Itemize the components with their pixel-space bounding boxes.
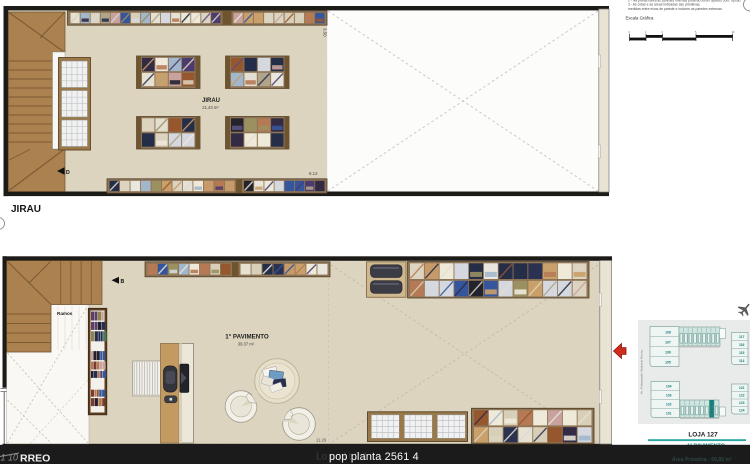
svg-text:6.12: 6.12 bbox=[309, 171, 318, 176]
svg-text:3 - As cotas e as areas indica: 3 - As cotas e as areas indicadas sao pr… bbox=[628, 2, 700, 6]
svg-text:LOJA 127: LOJA 127 bbox=[688, 432, 718, 439]
svg-text:Av. Embaixador Abelardo Bueno: Av. Embaixador Abelardo Bueno bbox=[640, 350, 644, 395]
svg-text:102: 102 bbox=[666, 403, 672, 407]
svg-text:Área Privativa - 60,80 m²: Área Privativa - 60,80 m² bbox=[672, 456, 732, 463]
svg-text:105: 105 bbox=[665, 360, 671, 364]
svg-text:1° PAVIMENTO: 1° PAVIMENTO bbox=[225, 334, 269, 341]
svg-text:122: 122 bbox=[739, 394, 745, 398]
svg-text:RREO: RREO bbox=[20, 453, 50, 464]
svg-text:115: 115 bbox=[739, 351, 745, 355]
svg-text:101: 101 bbox=[666, 412, 672, 416]
svg-text:106: 106 bbox=[665, 350, 671, 354]
svg-text:104: 104 bbox=[666, 385, 672, 389]
svg-text:Ramos: Ramos bbox=[57, 311, 73, 316]
svg-text:107: 107 bbox=[665, 340, 671, 344]
svg-text:123: 123 bbox=[739, 401, 745, 405]
svg-text:121: 121 bbox=[739, 386, 745, 390]
svg-text:116: 116 bbox=[739, 343, 745, 347]
svg-text:103: 103 bbox=[666, 394, 672, 398]
svg-text:3.50: 3.50 bbox=[323, 28, 328, 37]
svg-text:JIRAU: JIRAU bbox=[202, 98, 220, 104]
svg-text:11.26: 11.26 bbox=[316, 438, 327, 443]
svg-text:124: 124 bbox=[739, 409, 745, 413]
svg-text:JIRAU: JIRAU bbox=[11, 204, 41, 215]
svg-text:108: 108 bbox=[665, 330, 671, 334]
svg-text:21.43 m²: 21.43 m² bbox=[202, 105, 219, 110]
svg-text:39.37 m²: 39.37 m² bbox=[238, 342, 255, 347]
svg-text:B: B bbox=[121, 279, 125, 285]
svg-text:D: D bbox=[66, 170, 70, 176]
svg-text:medidas entre eixos de parede: medidas entre eixos de parede e incluem … bbox=[628, 7, 723, 11]
svg-text:pop planta 2561 4: pop planta 2561 4 bbox=[329, 451, 419, 463]
svg-text:Escala Gráfica: Escala Gráfica bbox=[626, 16, 655, 21]
svg-text:117: 117 bbox=[739, 335, 745, 339]
svg-text:114: 114 bbox=[739, 359, 745, 363]
